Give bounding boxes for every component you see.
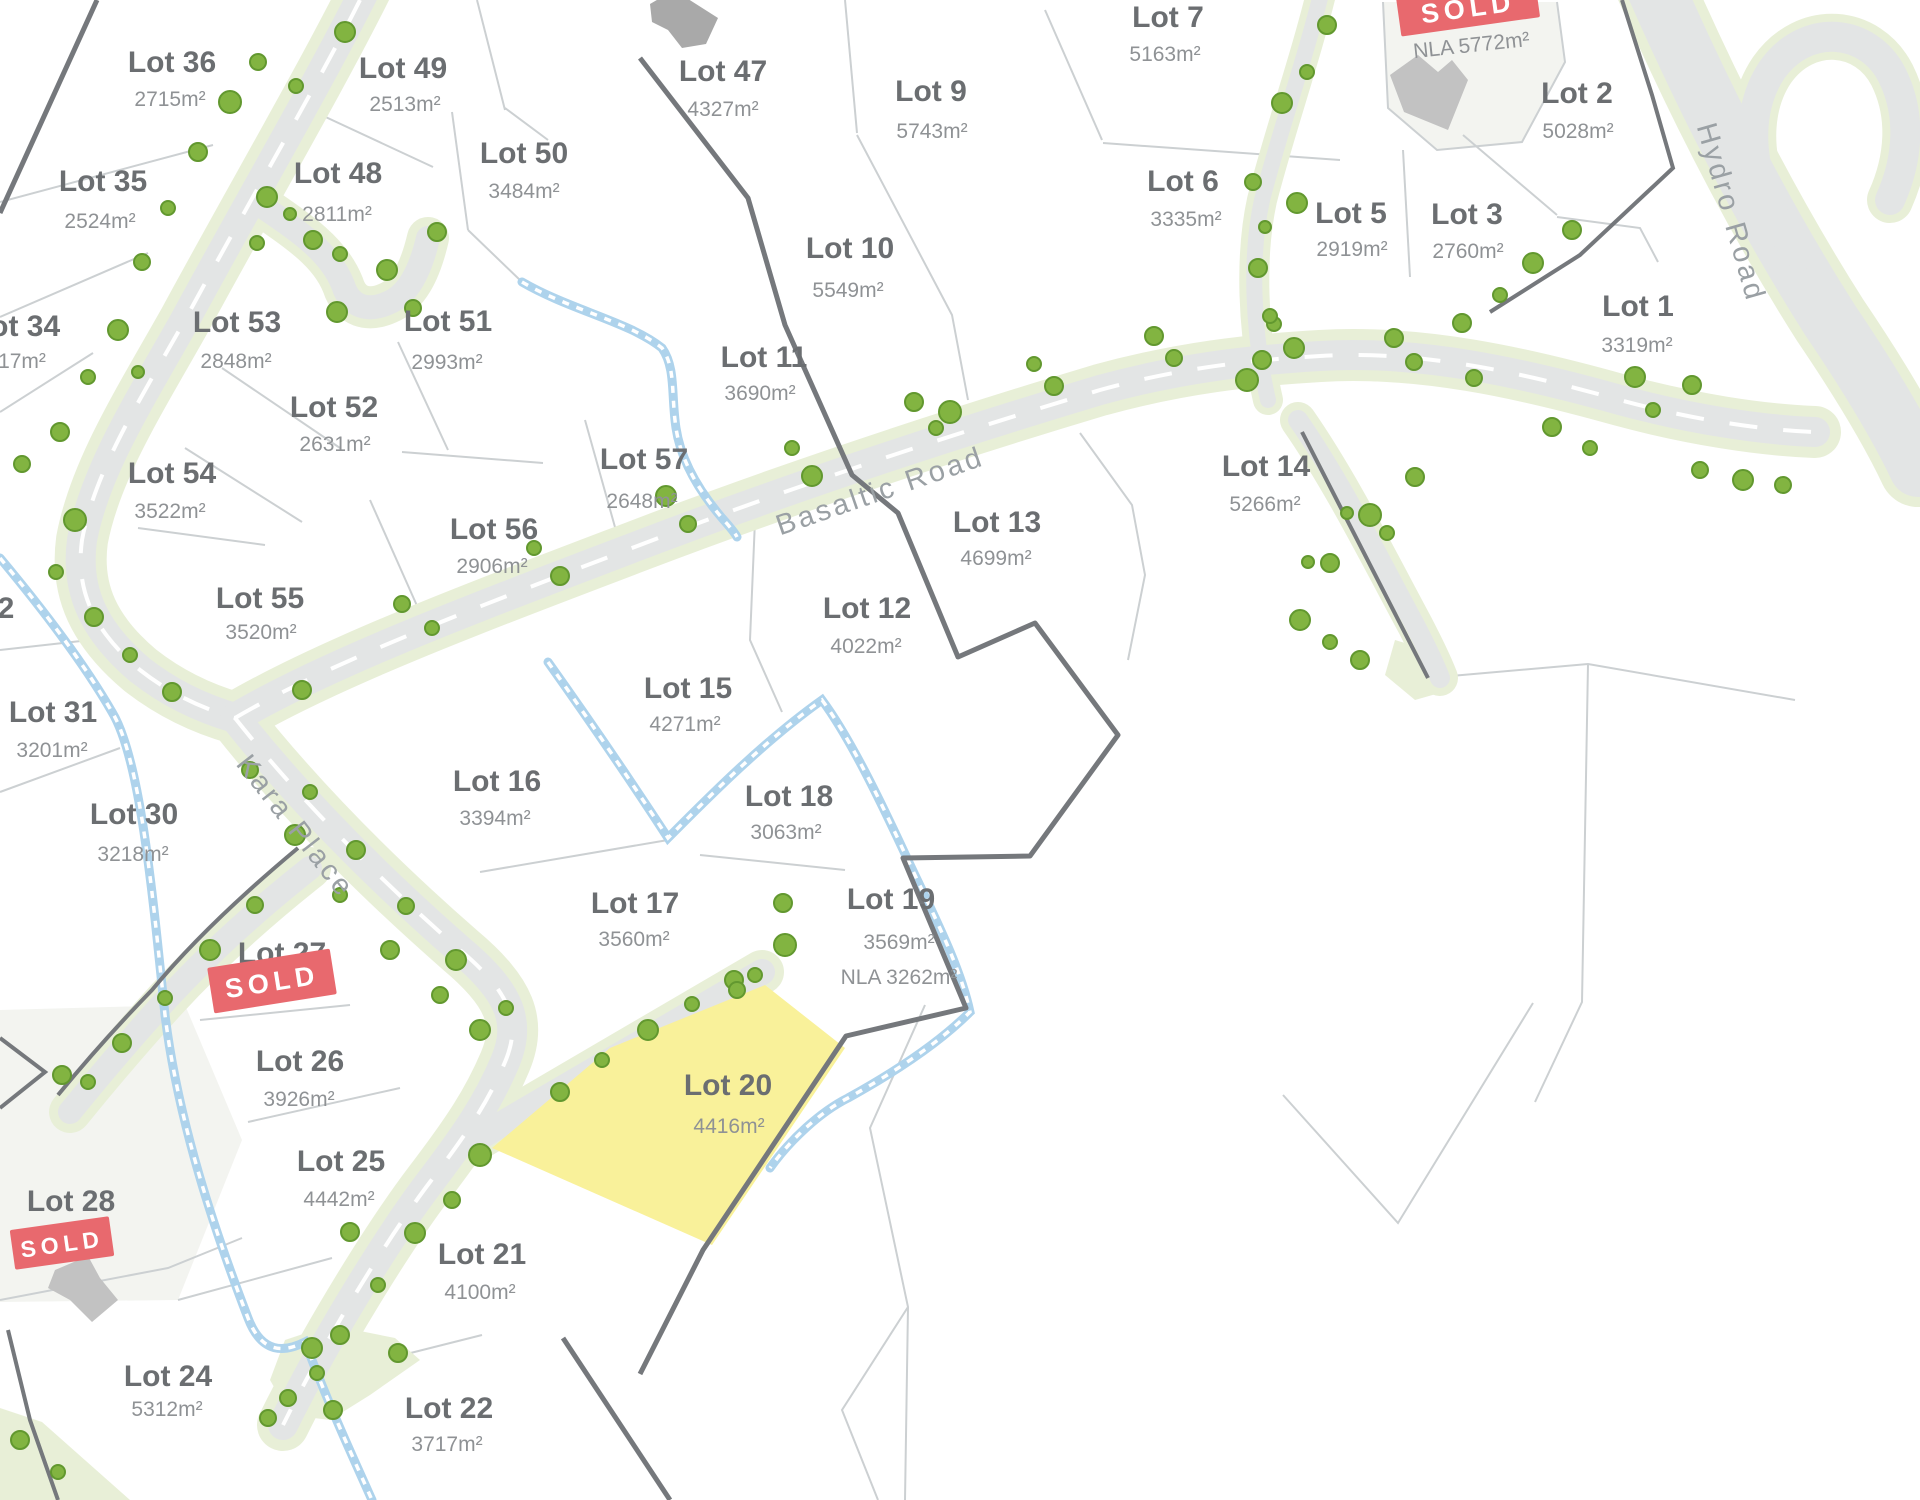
svg-text:Lot 5: Lot 5 <box>1315 197 1387 230</box>
svg-text:4442m²: 4442m² <box>303 1188 374 1211</box>
lot-label-49[interactable]: Lot 492513m² <box>359 52 447 116</box>
svg-text:5266m²: 5266m² <box>1229 493 1300 516</box>
svg-text:3690m²: 3690m² <box>724 382 795 405</box>
lot-label-52[interactable]: Lot 522631m² <box>290 391 378 456</box>
svg-text:Lot 1: Lot 1 <box>1602 290 1674 323</box>
svg-text:5163m²: 5163m² <box>1129 43 1200 66</box>
svg-text:Lot 55: Lot 55 <box>216 582 304 615</box>
svg-text:2648m²: 2648m² <box>606 490 677 513</box>
svg-text:4271m²: 4271m² <box>649 713 720 736</box>
svg-text:3319m²: 3319m² <box>1601 334 1672 357</box>
svg-text:3926m²: 3926m² <box>263 1088 334 1111</box>
svg-text:2811m²: 2811m² <box>302 203 372 226</box>
svg-text:Lot 2: Lot 2 <box>1541 77 1613 110</box>
svg-text:3522m²: 3522m² <box>134 500 205 523</box>
lot-label-55[interactable]: Lot 553520m² <box>216 582 304 644</box>
svg-text:Lot 12: Lot 12 <box>823 592 911 625</box>
svg-text:Lot 9: Lot 9 <box>895 75 967 108</box>
svg-text:4699m²: 4699m² <box>960 547 1031 570</box>
svg-text:Lot 20: Lot 20 <box>684 1069 772 1102</box>
svg-text:Lot 17: Lot 17 <box>591 887 679 920</box>
svg-text:3717m²: 3717m² <box>411 1433 482 1456</box>
svg-text:3560m²: 3560m² <box>598 928 669 951</box>
svg-text:3394m²: 3394m² <box>459 807 530 830</box>
lot-label-24[interactable]: Lot 245312m² <box>124 1360 213 1421</box>
svg-text:3063m²: 3063m² <box>750 821 821 844</box>
svg-text:3569m²: 3569m² <box>863 931 934 954</box>
svg-text:Lot 6: Lot 6 <box>1147 165 1219 198</box>
svg-text:3484m²: 3484m² <box>488 180 559 203</box>
lot-label-36[interactable]: Lot 362715m² <box>128 46 216 111</box>
svg-text:Lot 11: Lot 11 <box>721 341 808 374</box>
svg-text:5743m²: 5743m² <box>896 120 967 143</box>
svg-text:2760m²: 2760m² <box>1432 240 1503 263</box>
svg-text:2848m²: 2848m² <box>200 350 271 373</box>
svg-text:Lot 21: Lot 21 <box>438 1238 526 1271</box>
svg-text:2715m²: 2715m² <box>134 88 205 111</box>
svg-text:Lot 54: Lot 54 <box>128 457 217 490</box>
svg-text:4416m²: 4416m² <box>693 1115 764 1138</box>
lot-label-28[interactable]: Lot 28 <box>27 1185 115 1218</box>
svg-text:2513m²: 2513m² <box>369 93 440 116</box>
svg-text:Lot 36: Lot 36 <box>128 46 216 79</box>
svg-text:Lot 16: Lot 16 <box>453 765 541 798</box>
svg-text:Lot 47: Lot 47 <box>679 55 767 88</box>
svg-text:Lot 26: Lot 26 <box>256 1045 344 1078</box>
svg-text:Lot 57: Lot 57 <box>600 443 688 476</box>
svg-text:4022m²: 4022m² <box>830 635 901 658</box>
svg-text:Lot 15: Lot 15 <box>644 672 732 705</box>
lot-label-15[interactable]: Lot 154271m² <box>644 672 732 736</box>
lot-label-22[interactable]: Lot 223717m² <box>405 1392 493 1456</box>
svg-text:2631m²: 2631m² <box>299 433 370 456</box>
svg-text:Lot 34: Lot 34 <box>0 310 60 343</box>
lot-label-17[interactable]: Lot 173560m² <box>591 887 679 951</box>
svg-text:5028m²: 5028m² <box>1542 120 1613 143</box>
svg-text:5549m²: 5549m² <box>812 279 883 302</box>
svg-text:Lot 24: Lot 24 <box>124 1360 213 1393</box>
svg-text:2524m²: 2524m² <box>64 210 135 233</box>
svg-text:3335m²: 3335m² <box>1150 208 1221 231</box>
svg-text:Lot 10: Lot 10 <box>806 232 894 265</box>
svg-text:2993m²: 2993m² <box>411 351 482 374</box>
lot-label-5[interactable]: Lot 52919m² <box>1315 197 1387 261</box>
svg-text:5312m²: 5312m² <box>131 1398 202 1421</box>
svg-text:Lot 3: Lot 3 <box>1431 198 1503 231</box>
map-canvas[interactable]: Basaltic Road Kara Place Hydro Road Lot … <box>0 0 1920 1500</box>
lot-label-16[interactable]: Lot 163394m² <box>453 765 541 830</box>
lot-label-18[interactable]: Lot 183063m² <box>745 780 833 844</box>
svg-text:Lot 48: Lot 48 <box>294 157 382 190</box>
svg-text:NLA 3262m²: NLA 3262m² <box>841 966 958 989</box>
svg-text:3520m²: 3520m² <box>225 621 296 644</box>
svg-text:Lot 53: Lot 53 <box>193 306 281 339</box>
svg-text:Lot 56: Lot 56 <box>450 513 538 546</box>
lot-label-13[interactable]: Lot 134699m² <box>953 506 1041 570</box>
svg-text:Lot 14: Lot 14 <box>1222 450 1311 483</box>
lot-label-7[interactable]: Lot 75163m² <box>1129 1 1203 66</box>
svg-text:Lot 22: Lot 22 <box>405 1392 493 1425</box>
svg-text:Lot 49: Lot 49 <box>359 52 447 85</box>
svg-text:Lot 19: Lot 19 <box>847 883 935 916</box>
svg-text:Lot 18: Lot 18 <box>745 780 833 813</box>
svg-text:Lot 52: Lot 52 <box>290 391 378 424</box>
svg-text:Lot 50: Lot 50 <box>480 137 568 170</box>
svg-text:Lot 25: Lot 25 <box>297 1145 385 1178</box>
partial-lot-label: 2 <box>0 592 14 625</box>
svg-text:2919m²: 2919m² <box>1316 238 1387 261</box>
lot-label-3[interactable]: Lot 32760m² <box>1431 198 1503 263</box>
svg-text:4327m²: 4327m² <box>687 98 758 121</box>
svg-text:3201m²: 3201m² <box>16 739 87 762</box>
lot-label-11[interactable]: Lot 113690m² <box>721 341 808 405</box>
svg-text:Lot 35: Lot 35 <box>59 165 147 198</box>
svg-text:17m²: 17m² <box>0 350 46 373</box>
svg-text:Lot 51: Lot 51 <box>404 305 492 338</box>
svg-text:Lot 28: Lot 28 <box>27 1185 115 1218</box>
svg-text:Lot 13: Lot 13 <box>953 506 1041 539</box>
subdivision-map[interactable]: Basaltic Road Kara Place Hydro Road Lot … <box>0 0 1920 1500</box>
svg-text:Lot 31: Lot 31 <box>9 696 97 729</box>
svg-text:2906m²: 2906m² <box>456 555 527 578</box>
svg-text:Lot 7: Lot 7 <box>1132 1 1204 34</box>
svg-text:4100m²: 4100m² <box>444 1281 515 1304</box>
svg-text:3218m²: 3218m² <box>97 843 168 866</box>
svg-text:Lot 30: Lot 30 <box>90 798 178 831</box>
lot-label-56[interactable]: Lot 562906m² <box>450 513 538 578</box>
